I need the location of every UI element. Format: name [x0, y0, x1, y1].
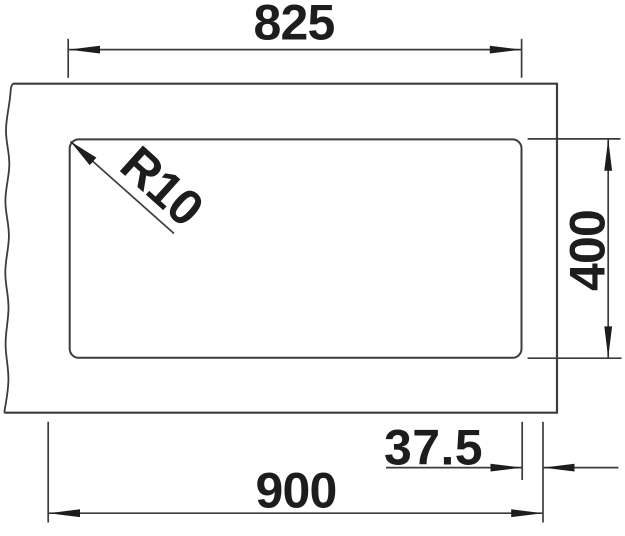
svg-text:900: 900: [255, 463, 336, 519]
svg-text:825: 825: [253, 0, 334, 51]
svg-text:400: 400: [560, 210, 616, 291]
svg-text:37.5: 37.5: [384, 420, 483, 476]
